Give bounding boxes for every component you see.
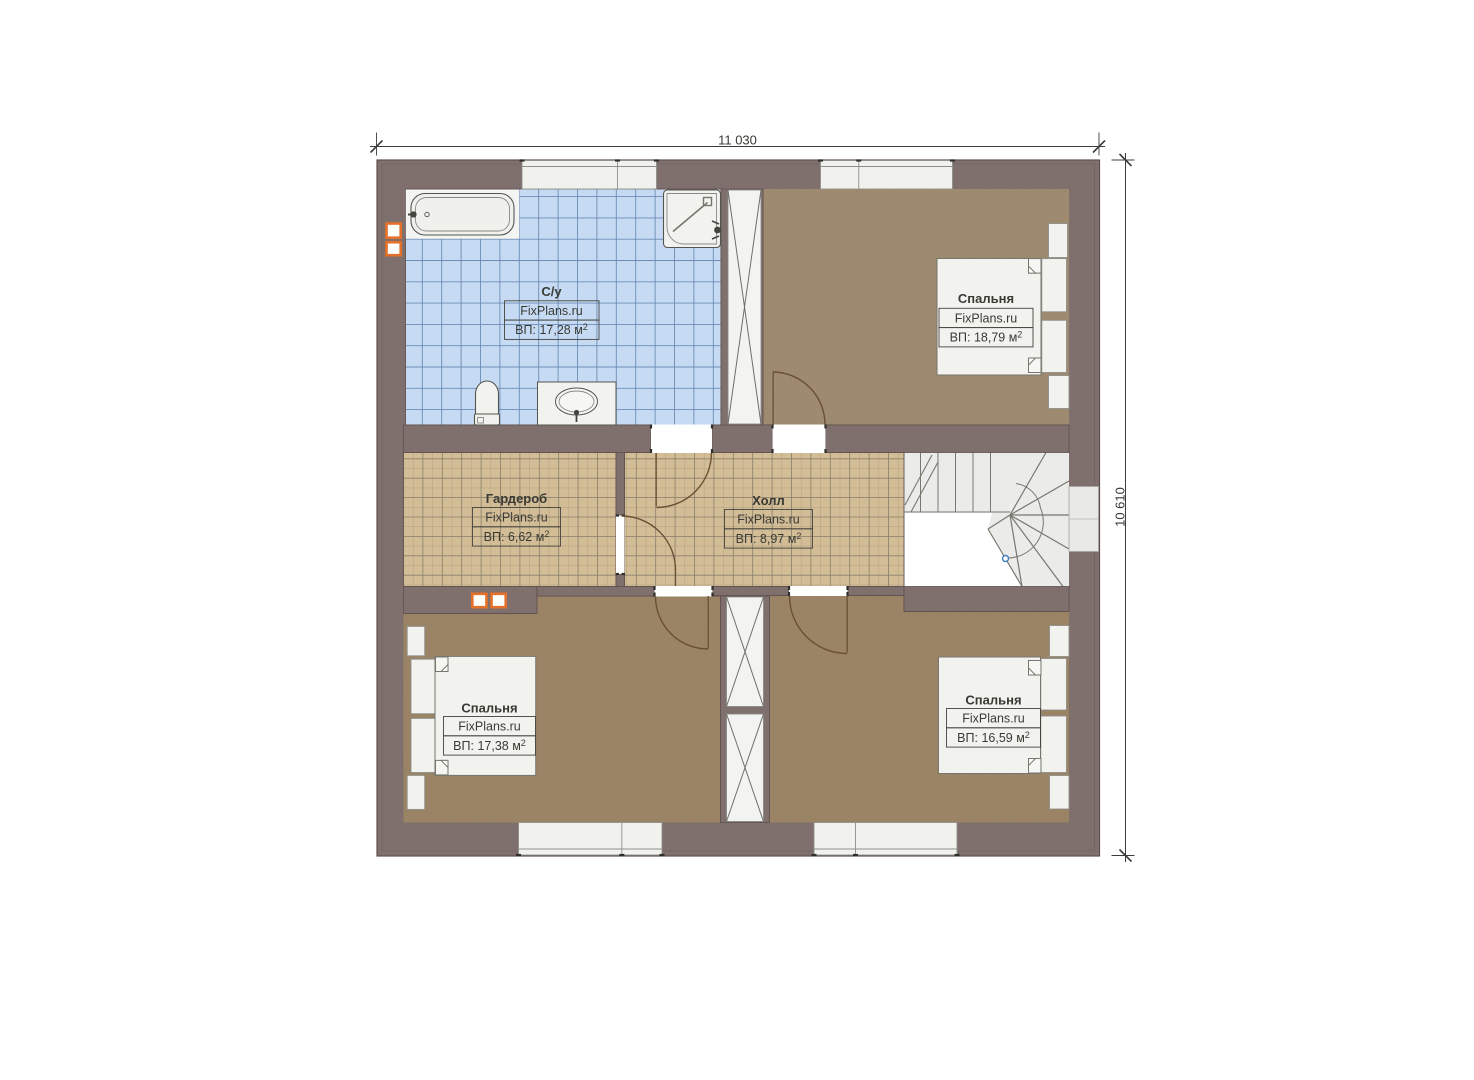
svg-text:Спальня: Спальня — [958, 291, 1014, 306]
svg-text:ВП: 16,59 м2: ВП: 16,59 м2 — [957, 730, 1030, 745]
svg-text:FixPlans.ru: FixPlans.ru — [458, 720, 521, 734]
svg-text:Спальня: Спальня — [461, 701, 517, 716]
svg-text:Спальня: Спальня — [965, 693, 1021, 708]
svg-text:10 610: 10 610 — [1112, 487, 1127, 527]
svg-text:ВП: 18,79 м2: ВП: 18,79 м2 — [950, 330, 1023, 345]
svg-text:ВП: 17,28 м2: ВП: 17,28 м2 — [515, 322, 588, 337]
svg-text:Гардероб: Гардероб — [486, 491, 547, 506]
svg-text:FixPlans.ru: FixPlans.ru — [955, 311, 1018, 325]
svg-text:ВП: 6,62 м2: ВП: 6,62 м2 — [484, 529, 550, 544]
svg-text:ВП: 8,97 м2: ВП: 8,97 м2 — [736, 531, 802, 546]
svg-text:FixPlans.ru: FixPlans.ru — [737, 513, 800, 527]
svg-text:FixPlans.ru: FixPlans.ru — [962, 712, 1025, 726]
svg-text:ВП: 17,38 м2: ВП: 17,38 м2 — [453, 738, 526, 753]
svg-text:11 030: 11 030 — [718, 133, 757, 148]
svg-text:С/у: С/у — [541, 284, 562, 299]
svg-text:Холл: Холл — [752, 493, 785, 508]
svg-text:FixPlans.ru: FixPlans.ru — [485, 511, 548, 525]
svg-text:FixPlans.ru: FixPlans.ru — [520, 304, 583, 318]
